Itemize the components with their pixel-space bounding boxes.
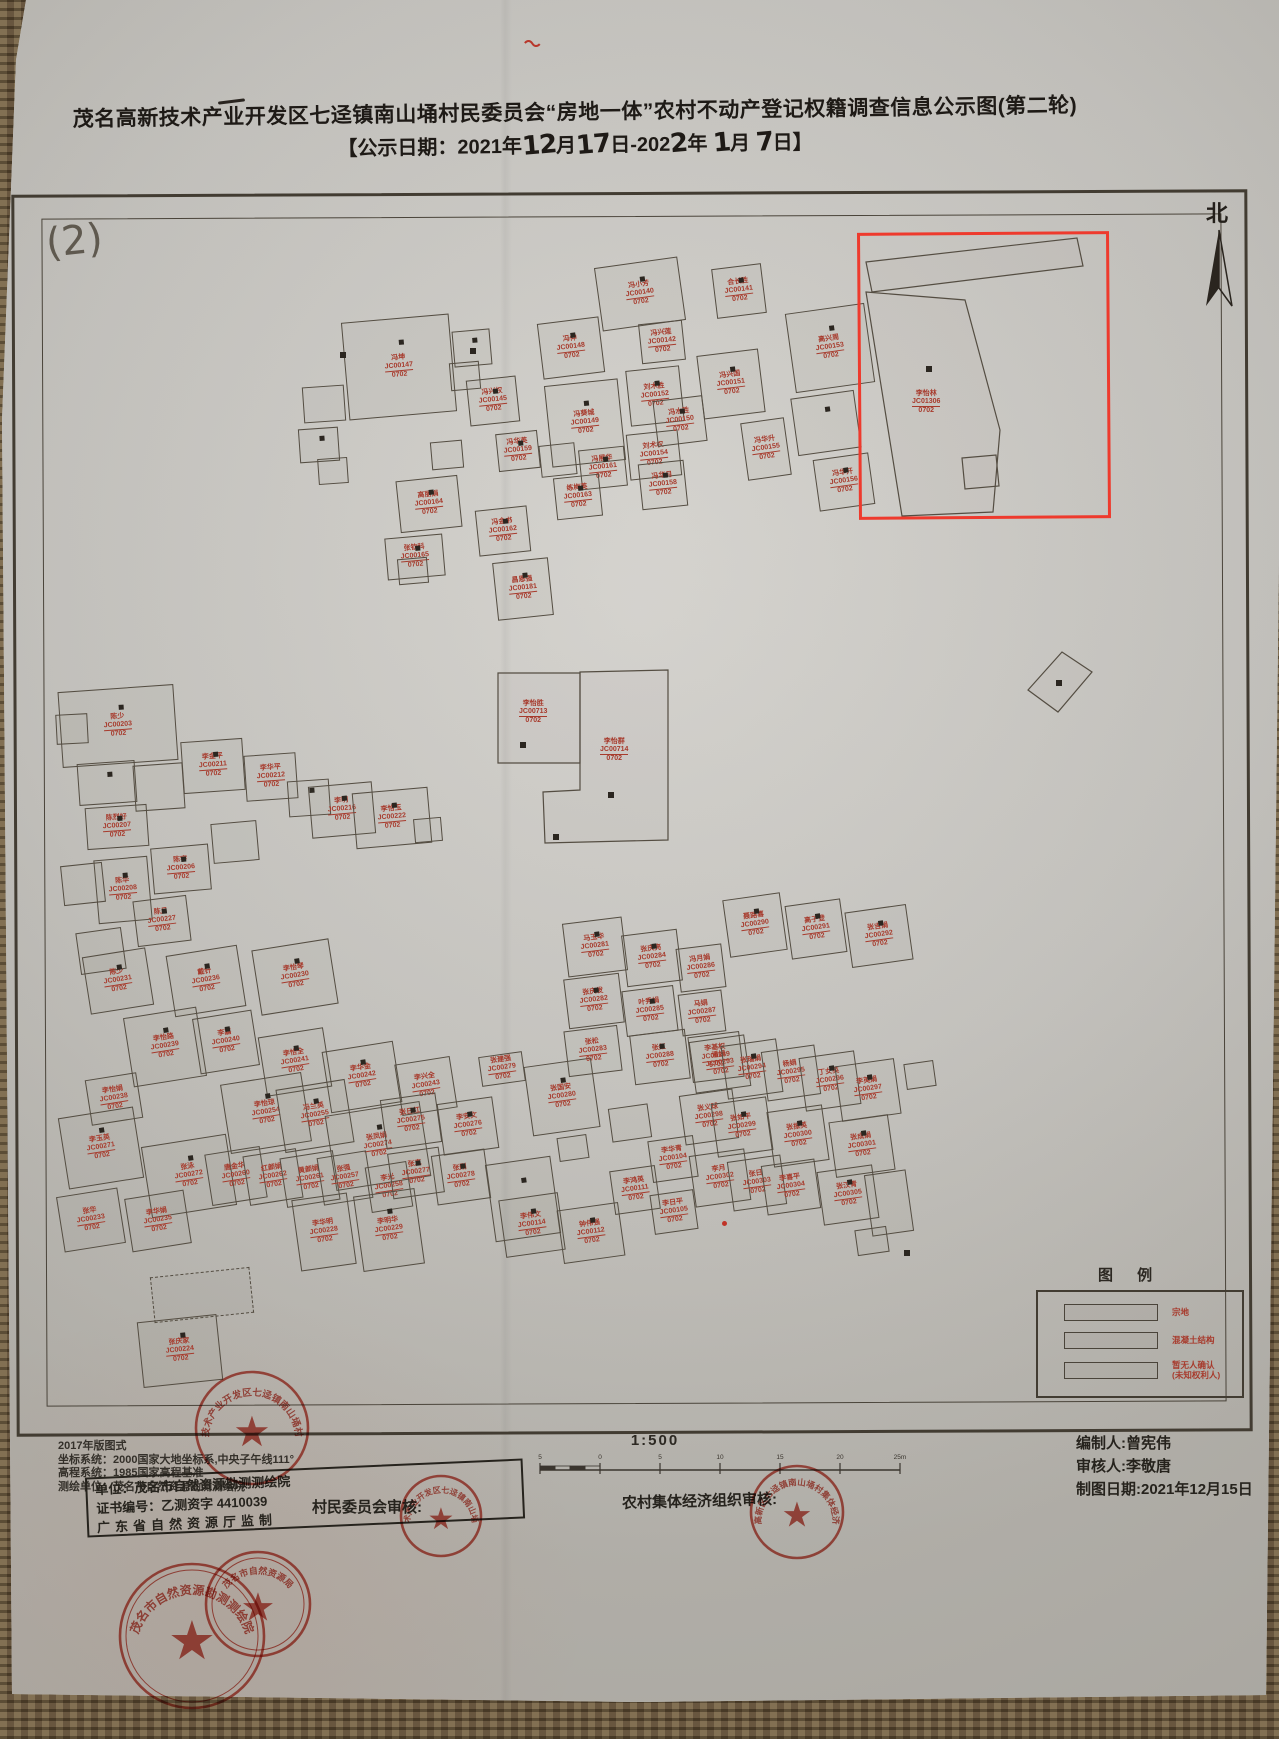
building-owner-label: 陈华JC002080702 (108, 876, 138, 903)
building: 张刚JC002780702 (431, 1148, 491, 1205)
door-marker (119, 705, 124, 710)
door-marker (754, 909, 760, 915)
annotation-square (608, 792, 614, 798)
door-marker (584, 400, 589, 405)
building: 李嘉JC002400702 (192, 1010, 260, 1075)
door-marker (730, 366, 736, 372)
door-marker (123, 872, 128, 877)
building (790, 390, 861, 456)
building-owner-label: 张泳JC002720702 (173, 1161, 205, 1190)
building-owner-label: 冯坤JC001470702 (384, 353, 414, 380)
building-owner-label: 李玉英JC002710702 (85, 1133, 117, 1162)
door-marker (521, 1177, 527, 1183)
door-marker (117, 815, 122, 820)
annotation-square (340, 352, 346, 358)
door-marker (651, 943, 657, 949)
legend-item: 混凝土结构 (1064, 1332, 1215, 1349)
building-owner-label: 冯兴莲JC001420702 (647, 328, 678, 355)
door-marker (107, 771, 112, 776)
door-marker (387, 1209, 393, 1215)
building: 高丽娟JC001640702 (395, 475, 462, 533)
building: 冯月娟JC002860702 (675, 943, 726, 992)
building (556, 1134, 589, 1162)
building-owner-label: 李怡玉JC002220702 (377, 804, 407, 831)
door-marker (342, 796, 347, 801)
building: 昌恩强JC001810702 (492, 557, 554, 621)
door-marker (654, 380, 659, 385)
door-marker (213, 752, 218, 757)
building-owner-label: 冯月娟JC002860702 (685, 954, 716, 982)
building (903, 1060, 936, 1090)
building-owner-label: 冯小芳JC001400702 (624, 279, 656, 307)
building: 陈少JC002310702 (82, 947, 154, 1014)
map-basis-line: 坐标系统：2000国家大地坐标系,中央子午线111° (58, 1454, 294, 1468)
building: 高子登JC002910702 (785, 898, 848, 959)
building: 李玉英JC002710702 (58, 1106, 144, 1189)
door-marker (162, 908, 168, 914)
door-marker (825, 407, 831, 413)
door-marker (265, 1093, 271, 1099)
door-marker (163, 1027, 169, 1033)
door-marker (377, 1124, 383, 1130)
scale-ratio: 1:500 (540, 1432, 770, 1449)
building: 冯华升JC001550702 (740, 417, 792, 481)
building (413, 817, 443, 843)
door-marker (467, 1111, 473, 1117)
building: 张华JC002330702 (56, 1187, 126, 1252)
building: 冯金书JC001620702 (475, 505, 532, 556)
building: 陈烈好JC002070702 (85, 804, 150, 850)
door-marker (410, 1107, 416, 1113)
building (397, 557, 429, 586)
building (430, 440, 464, 471)
door-marker (205, 963, 211, 969)
building-owner-label: 李华金JC002420702 (346, 1062, 378, 1091)
building-owner-label: 昌恩强JC001810702 (508, 575, 539, 602)
building-owner-label: 李怡琴JC002300702 (279, 962, 311, 991)
building: 叶秀娟JC002850702 (621, 985, 678, 1037)
door-marker (578, 485, 583, 490)
building (60, 862, 106, 906)
scale-bar: 50510152025m (532, 1450, 912, 1484)
legend-swatch (1064, 1304, 1158, 1321)
svg-text:10: 10 (716, 1454, 724, 1461)
door-marker (847, 1180, 853, 1186)
door-marker (751, 1054, 757, 1060)
door-marker (659, 1043, 665, 1049)
building: 张庆亮JC002840702 (621, 929, 683, 987)
door-marker (117, 965, 123, 971)
building (317, 457, 349, 485)
door-marker (663, 472, 668, 477)
door-marker (460, 1163, 466, 1169)
building: 张日红JC002750702 (380, 1092, 442, 1149)
building: 李日平JC001050702 (649, 1189, 698, 1235)
door-marker (531, 1209, 537, 1215)
door-marker (679, 408, 685, 414)
building-owner-label: 张建强JC002790702 (486, 1054, 518, 1082)
door-marker (867, 1074, 873, 1080)
building: 戴针JC002360702 (166, 945, 247, 1018)
door-marker (415, 545, 420, 550)
building-owner-label: 张国安JC002800702 (546, 1082, 578, 1110)
building-owner-label: 李华娟JC002350702 (142, 1206, 174, 1235)
annotation-square (904, 1250, 910, 1256)
building-owner-label: 聂路喜JC002900702 (739, 910, 771, 938)
door-marker (815, 914, 821, 920)
photo-of-cadastral-notice-map: 〜 茂名高新技术产业开发区七迳镇南山埇村民委员会“房地一体”农村不动产登记权籍调… (0, 0, 1279, 1739)
door-marker (472, 338, 477, 343)
door-marker (741, 1112, 747, 1118)
credit-line: 审核人:李敬唐 (1076, 1455, 1253, 1478)
building (538, 442, 577, 478)
door-marker (593, 987, 599, 993)
building-owner-label: 李华明JC002280702 (308, 1217, 340, 1245)
door-marker (392, 802, 397, 807)
building-owner-label: 张松JC002830702 (577, 1037, 608, 1065)
building: 张建强JC002790702 (478, 1051, 526, 1087)
door-marker (181, 856, 186, 861)
door-marker (399, 340, 404, 345)
building: 聂路喜JC002900702 (722, 892, 788, 958)
building-owner-label: 冯华升JC001550702 (750, 434, 782, 462)
map-basis-line: 2017年版图式 (58, 1440, 294, 1454)
door-marker (738, 277, 744, 283)
building-owner-label: 李华平JC002120702 (256, 763, 286, 789)
legend-label: 宗地 (1172, 1307, 1189, 1317)
door-marker (843, 467, 849, 473)
building (608, 1103, 652, 1142)
building: 张庆家JC002240702 (137, 1314, 223, 1388)
door-marker (415, 1160, 421, 1166)
door-marker (828, 325, 834, 331)
door-marker (503, 518, 508, 523)
building: 李金平JC002110702 (180, 738, 245, 794)
red-dot-mark (722, 1221, 727, 1226)
building: 李明华JC002290702 (353, 1188, 425, 1272)
svg-text:20: 20 (836, 1454, 844, 1461)
building: 李华明JC002280702 (291, 1192, 356, 1271)
building (854, 1226, 889, 1256)
svg-text:15: 15 (776, 1454, 784, 1461)
building (210, 820, 259, 864)
building-owner-label: 李怡全JC002410702 (279, 1047, 311, 1076)
building: 张松JC002830702 (563, 1025, 622, 1077)
annotation-square (520, 742, 526, 748)
annotation-square (470, 348, 476, 354)
building: 合长胜JC001410702 (711, 263, 767, 319)
building-owner-label: 陈少JC002310702 (102, 966, 134, 995)
building: 张红JC002880702 (629, 1029, 691, 1085)
door-marker (493, 388, 498, 393)
credit-line: 编制人:曾宪伟 (1076, 1432, 1253, 1455)
building: 李安文JC002760702 (437, 1096, 500, 1155)
door-marker (294, 1045, 300, 1051)
building (864, 1169, 914, 1236)
legend-title: 图 例 (1098, 1264, 1162, 1285)
credit-line: 制图日期:2021年12月15日 (1076, 1478, 1253, 1501)
building-owner-label: 张强JC002570702 (329, 1163, 361, 1192)
building-owner-label: 陈少JC002030702 (103, 712, 133, 738)
door-marker (188, 1156, 194, 1162)
building (77, 760, 138, 806)
highlight-rectangle (857, 231, 1111, 520)
building-owner-label: 高兴周JC001530702 (814, 333, 846, 361)
building: 李华娟JC002350702 (124, 1190, 192, 1253)
door-marker (361, 1059, 367, 1065)
svg-text:5: 5 (658, 1454, 662, 1461)
building-owner-label: 李伟文JC001140702 (516, 1210, 547, 1238)
door-marker (294, 958, 300, 964)
building: 冯坤JC001470702 (341, 313, 457, 420)
building-owner-label: 戴针JC002360702 (190, 966, 222, 995)
parcel-owner-label: 李怡群JC007140702 (600, 738, 628, 762)
building-owner-label: 李怡路JC002390702 (149, 1032, 181, 1061)
door-marker (429, 489, 434, 494)
building: 李伟文JC001140702 (498, 1192, 565, 1258)
building: 冯华月JC001580702 (638, 460, 689, 511)
building: 马玉华JC002810702 (562, 917, 628, 978)
legend-swatch (1064, 1362, 1158, 1379)
door-marker (518, 440, 523, 445)
door-marker (797, 1120, 803, 1126)
building: 冯水胜JC001500702 (652, 395, 707, 447)
building-owner-label: 李华青JC001040702 (657, 1144, 689, 1172)
building-owner-label: 冯兴国JC001510702 (715, 370, 746, 398)
building (302, 385, 346, 424)
legend-label: 暂无人确认 (未知权利人) (1172, 1360, 1220, 1380)
building: 冯伸JC001480702 (537, 316, 605, 379)
building: 陈月JC002270702 (132, 895, 191, 947)
collective-economy-review-label: 农村集体经济组织审核: (622, 1488, 777, 1513)
building: 李英娟JC002970702 (834, 1058, 901, 1122)
parcel-owner-label: 李怡胜JC007130702 (519, 700, 547, 724)
door-marker (878, 920, 884, 926)
door-marker (225, 1026, 231, 1032)
door-marker (99, 1128, 105, 1134)
annotation-square (553, 834, 559, 840)
building: 张庆发JC002820702 (563, 973, 625, 1029)
legend-swatch (1064, 1332, 1158, 1349)
building-owner-label: 张庆家JC002240702 (165, 1337, 196, 1364)
building-owner-label: 张华JC002330702 (75, 1205, 107, 1234)
door-marker (561, 1077, 567, 1083)
annotation-square (1056, 680, 1062, 686)
door-marker (649, 998, 655, 1004)
building-owner-label: 马娟JC002870702 (686, 999, 717, 1027)
credits-block: 编制人:曾宪伟审核人:李敬唐制图日期:2021年12月15日 (1076, 1432, 1253, 1501)
building-owner-label: 冯葵城JC001490702 (570, 409, 601, 436)
door-marker (639, 276, 645, 282)
building-owner-label: 李明华JC002290702 (373, 1215, 405, 1243)
svg-text:5: 5 (538, 1454, 542, 1461)
legend-item: 宗地 (1064, 1304, 1189, 1321)
building: 冯兴莲JC001420702 (638, 320, 686, 364)
building-owner-label: 李日平JC001050702 (658, 1197, 690, 1225)
door-marker (319, 436, 324, 441)
building: 冯兴权JC001450702 (466, 376, 521, 427)
door-marker (180, 1332, 185, 1337)
legend: 宗地混凝土结构暂无人确认 (未知权利人) (1036, 1290, 1244, 1398)
building: 冯兴国JC001510702 (696, 348, 765, 419)
building (55, 713, 89, 745)
svg-text:25m: 25m (894, 1454, 907, 1461)
building: 冯华英JC001590702 (495, 430, 541, 472)
building: 陈宇JC002060702 (150, 844, 212, 895)
village-committee-review-label: 村民委员会审核: (312, 1496, 422, 1517)
legend-label: 混凝土结构 (1172, 1335, 1215, 1345)
door-marker (590, 1218, 596, 1224)
building: 练梅英JC001630702 (553, 474, 603, 521)
door-marker (594, 932, 600, 938)
building: 张吉娟JC002920702 (844, 904, 913, 968)
building-owner-label: 李鸿英JC001110702 (620, 1175, 651, 1203)
building-owner-label: 李喜平JC003040702 (775, 1172, 807, 1200)
building: 李喜平JC003040702 (761, 1158, 821, 1215)
legend-item: 暂无人确认 (未知权利人) (1064, 1360, 1220, 1380)
door-marker (314, 1098, 320, 1104)
svg-text:0: 0 (598, 1454, 602, 1461)
door-marker (603, 457, 608, 462)
door-marker (861, 1130, 867, 1136)
building: 李怡琴JC002300702 (251, 938, 338, 1015)
door-marker (570, 332, 576, 338)
door-marker (522, 573, 527, 578)
